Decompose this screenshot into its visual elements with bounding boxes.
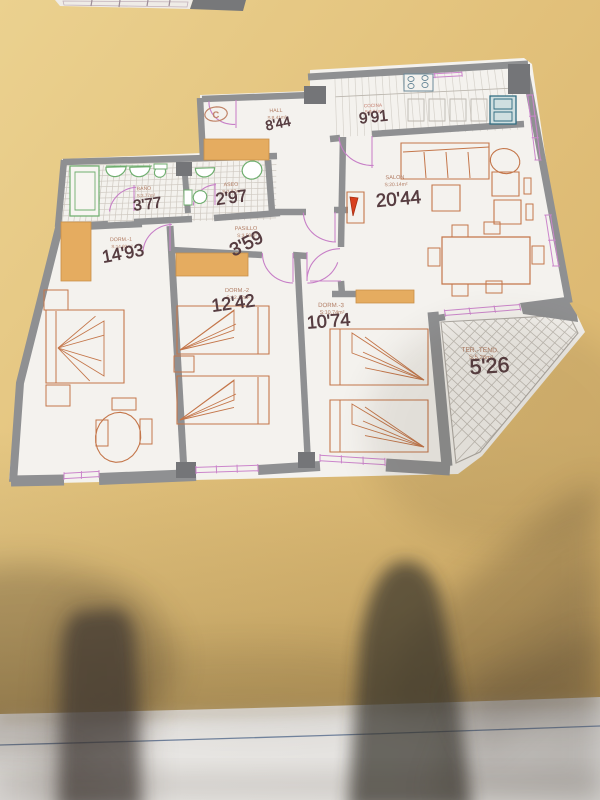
svg-text:C: C (212, 109, 219, 120)
svg-text:BAÑO: BAÑO (137, 185, 152, 192)
svg-text:SALON: SALON (385, 175, 404, 182)
svg-text:20'44: 20'44 (375, 186, 422, 211)
svg-text:3'77: 3'77 (132, 194, 162, 214)
svg-text:9'91: 9'91 (358, 107, 389, 127)
svg-text:HALL: HALL (269, 108, 282, 115)
svg-text:10'74: 10'74 (306, 309, 351, 332)
svg-text:DORM.-3: DORM.-3 (318, 302, 344, 309)
svg-text:2'97: 2'97 (214, 186, 248, 209)
